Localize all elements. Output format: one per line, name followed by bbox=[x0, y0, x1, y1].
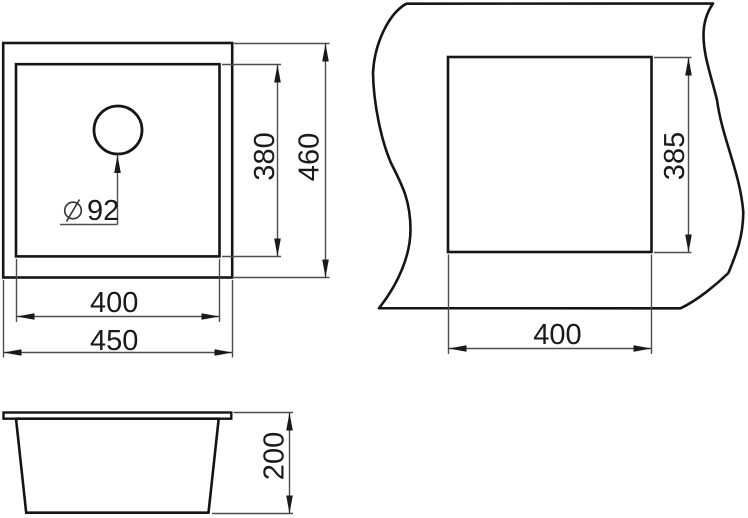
svg-text:380: 380 bbox=[249, 132, 281, 180]
svg-text:92: 92 bbox=[87, 195, 119, 227]
svg-text:400: 400 bbox=[90, 287, 138, 319]
svg-text:200: 200 bbox=[259, 432, 291, 480]
svg-text:450: 450 bbox=[90, 325, 138, 357]
svg-text:400: 400 bbox=[533, 319, 581, 351]
svg-text:385: 385 bbox=[659, 132, 691, 180]
svg-text:460: 460 bbox=[294, 133, 326, 181]
